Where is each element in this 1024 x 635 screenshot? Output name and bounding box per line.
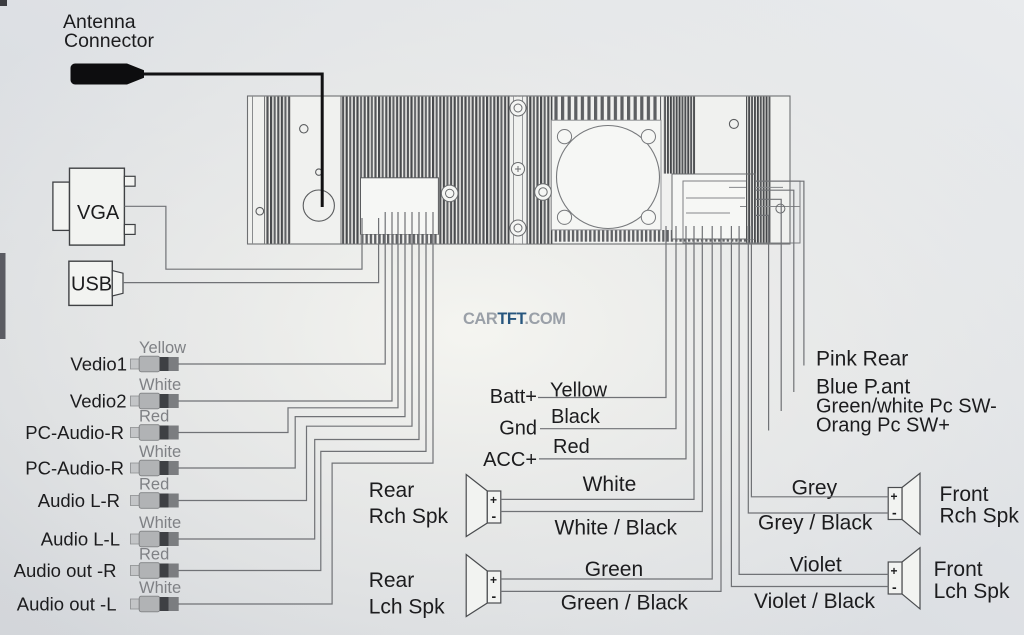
svg-text:Green: Green [585, 558, 643, 581]
svg-text:White: White [139, 514, 181, 532]
svg-text:Violet: Violet [790, 554, 842, 577]
svg-text:White: White [583, 473, 637, 496]
svg-text:Audio out -L: Audio out -L [17, 594, 117, 615]
svg-text:CARTFT.COM: CARTFT.COM [463, 310, 566, 328]
svg-text:ACC+: ACC+ [483, 449, 537, 471]
svg-text:-: - [492, 508, 497, 524]
svg-text:Batt+: Batt+ [490, 386, 537, 408]
svg-text:+: + [490, 493, 497, 507]
svg-text:Red: Red [553, 436, 590, 458]
svg-text:Rear: Rear [369, 569, 415, 592]
svg-text:Gnd: Gnd [499, 418, 537, 440]
svg-text:USB: USB [71, 274, 112, 296]
svg-text:Front: Front [934, 558, 983, 581]
svg-text:Audio L-L: Audio L-L [41, 529, 120, 550]
svg-text:Audio out -R: Audio out -R [14, 560, 117, 581]
svg-text:Grey: Grey [792, 477, 838, 500]
svg-text:Grey / Black: Grey / Black [758, 512, 873, 535]
svg-text:Yellow: Yellow [139, 339, 186, 357]
svg-text:-: - [892, 579, 897, 595]
svg-text:PC-Audio-R: PC-Audio-R [25, 458, 124, 479]
svg-text:Rear: Rear [369, 479, 415, 502]
svg-text:-: - [892, 505, 897, 521]
svg-text:-: - [492, 588, 497, 604]
svg-text:Audio L-R: Audio L-R [38, 490, 120, 511]
svg-text:Rch Spk: Rch Spk [369, 505, 449, 528]
svg-text:Pink Rear: Pink Rear [816, 348, 908, 371]
svg-text:Lch Spk: Lch Spk [369, 595, 445, 618]
svg-text:Front: Front [940, 483, 989, 506]
svg-text:Vedio2: Vedio2 [70, 391, 127, 412]
svg-text:Vedio1: Vedio1 [70, 354, 127, 375]
svg-text:Rch Spk: Rch Spk [940, 505, 1020, 528]
svg-text:+: + [490, 573, 497, 587]
svg-text:VGA: VGA [77, 202, 120, 224]
svg-text:White: White [139, 443, 181, 461]
svg-text:Green / Black: Green / Black [561, 592, 689, 615]
svg-text:Red: Red [139, 408, 169, 426]
svg-text:White / Black: White / Black [555, 516, 678, 539]
svg-text:Connector: Connector [64, 30, 154, 52]
svg-text:Red: Red [139, 476, 169, 494]
svg-text:Red: Red [139, 546, 169, 564]
svg-text:White: White [139, 579, 181, 597]
svg-text:White: White [139, 376, 181, 394]
svg-text:Violet / Black: Violet / Black [754, 590, 876, 613]
svg-text:Yellow: Yellow [550, 380, 608, 402]
svg-text:Orang Pc SW+: Orang Pc SW+ [816, 415, 950, 437]
svg-text:+: + [891, 490, 898, 504]
svg-text:PC-Audio-R: PC-Audio-R [25, 422, 124, 443]
svg-text:Black: Black [551, 406, 601, 428]
svg-text:Lch Spk: Lch Spk [934, 580, 1010, 603]
svg-text:+: + [891, 564, 898, 578]
